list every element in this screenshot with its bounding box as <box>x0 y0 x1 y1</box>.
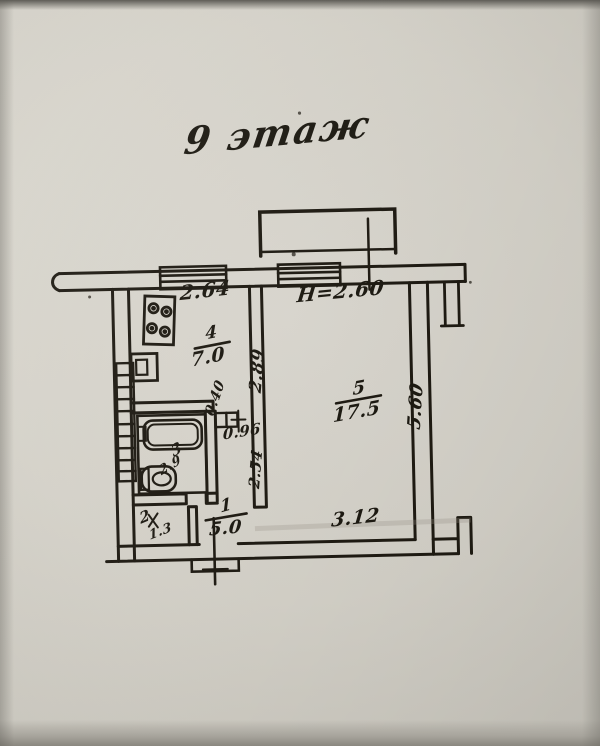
scanned-floorplan-photo: 9 этаж <box>0 0 600 746</box>
photo-edge-bottom <box>0 720 600 746</box>
photo-edge-left <box>0 0 14 746</box>
paper-sheen <box>0 0 600 746</box>
photo-edge-top <box>0 0 600 10</box>
photo-edge-right <box>582 0 600 746</box>
